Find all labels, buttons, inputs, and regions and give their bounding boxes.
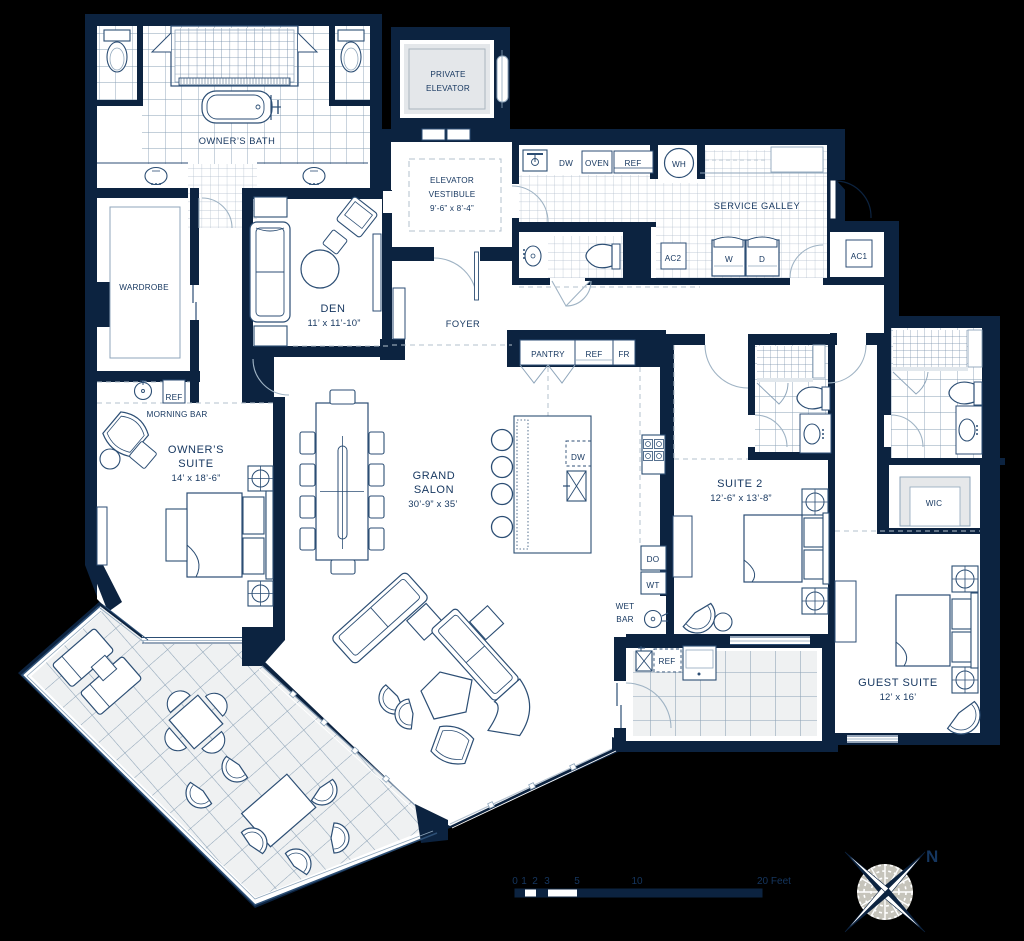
svg-text:11’ x 11’-10”: 11’ x 11’-10” (307, 318, 360, 329)
svg-text:12’-6” x 13’-8”: 12’-6” x 13’-8” (710, 493, 772, 504)
svg-text:GUEST SUITE: GUEST SUITE (858, 677, 938, 689)
svg-text:WT: WT (646, 581, 659, 590)
svg-text:BAR: BAR (616, 615, 633, 624)
svg-text:PRIVATE: PRIVATE (430, 70, 466, 79)
svg-text:10: 10 (631, 876, 643, 887)
svg-text:PANTRY: PANTRY (531, 350, 565, 359)
svg-text:FR: FR (618, 350, 629, 359)
svg-text:2: 2 (532, 876, 538, 887)
svg-text:DW: DW (559, 159, 573, 168)
svg-text:ELEVATOR: ELEVATOR (426, 84, 470, 93)
svg-text:30’-9” x 35’: 30’-9” x 35’ (408, 499, 457, 510)
svg-text:DW: DW (571, 453, 585, 462)
svg-text:N: N (926, 847, 938, 866)
svg-text:OWNER’S BATH: OWNER’S BATH (199, 136, 276, 146)
svg-text:AC1: AC1 (851, 252, 868, 261)
svg-text:VESTIBULE: VESTIBULE (429, 190, 476, 199)
svg-text:D: D (759, 255, 765, 264)
svg-text:0: 0 (512, 876, 518, 887)
svg-text:DEN: DEN (320, 303, 345, 315)
svg-text:12’ x 16’: 12’ x 16’ (880, 692, 917, 703)
svg-text:REF: REF (586, 350, 603, 359)
svg-text:REF: REF (659, 657, 676, 666)
svg-text:SALON: SALON (414, 484, 454, 496)
svg-text:OWNER’S: OWNER’S (168, 444, 224, 456)
svg-text:1: 1 (521, 876, 527, 887)
svg-text:WARDROBE: WARDROBE (119, 283, 169, 292)
svg-text:WIC: WIC (926, 499, 943, 508)
svg-text:REF: REF (166, 393, 183, 402)
svg-text:MORNING BAR: MORNING BAR (147, 410, 208, 419)
svg-text:WET: WET (616, 602, 635, 611)
svg-text:REF: REF (625, 159, 642, 168)
svg-text:OVEN: OVEN (585, 159, 609, 168)
svg-text:DO: DO (647, 555, 660, 564)
svg-text:3: 3 (544, 876, 550, 887)
svg-text:5: 5 (574, 876, 580, 887)
svg-text:SUITE: SUITE (178, 458, 213, 470)
svg-text:W: W (725, 255, 733, 264)
svg-text:20 Feet: 20 Feet (757, 876, 791, 887)
svg-text:SERVICE GALLEY: SERVICE GALLEY (714, 201, 800, 211)
svg-text:14’ x 18’-6”: 14’ x 18’-6” (171, 473, 220, 484)
svg-text:9’-6” x 8’-4”: 9’-6” x 8’-4” (430, 204, 474, 213)
svg-text:SUITE 2: SUITE 2 (717, 478, 763, 490)
svg-text:ELEVATOR: ELEVATOR (430, 176, 474, 185)
svg-text:FOYER: FOYER (446, 319, 481, 329)
svg-text:AC2: AC2 (665, 254, 682, 263)
svg-text:GRAND: GRAND (413, 470, 456, 482)
svg-text:WH: WH (672, 160, 686, 169)
